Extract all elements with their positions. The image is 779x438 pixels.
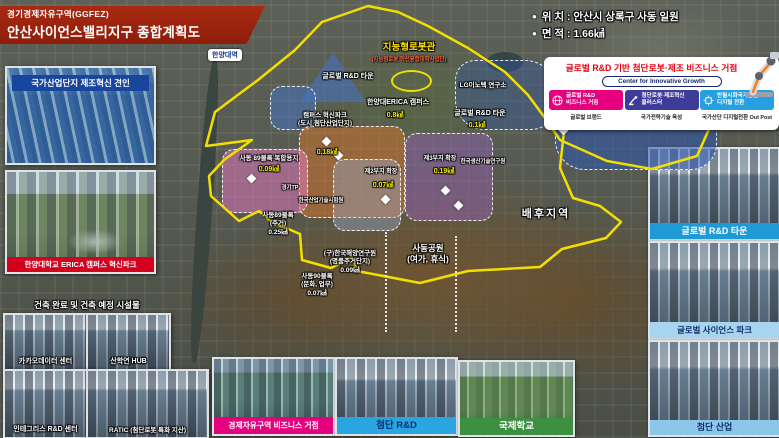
rnd-town-caption: 글로벌 R&D 타운: [650, 223, 779, 239]
advanced-rnd-caption: 첨단 R&D: [337, 417, 456, 434]
label-hinterland: 배후지역: [522, 207, 570, 221]
pillar-robot-cluster: 첨단로봇·제조혁신 클러스터 국가전략기술 육성: [625, 90, 699, 121]
label-ktl: 한국산업기술시험원: [299, 198, 344, 205]
facility-label: 카카오데이터 센터: [5, 356, 86, 366]
agency-subtitle: 경기경제자유구역(GGFEZ): [7, 8, 255, 20]
label-block90: 사동90블록(문화, 업무)0.07㎢: [301, 273, 333, 298]
zone-global-rnd-pond: [455, 60, 557, 130]
label-robot-hall: 지능형로봇관: [383, 42, 435, 54]
pillar-text: 첨단로봇·제조혁신 클러스터: [642, 93, 685, 106]
label-campus-innovation-park: 캠퍼스 혁신파크(도시 첨단산업단지): [298, 112, 352, 129]
label-global-rnd-west: 글로벌 R&D 타운: [322, 72, 373, 81]
label-global-rnd-east-area: 0.1㎢: [469, 121, 486, 130]
robot-hall-circle: [391, 70, 432, 92]
pillar-global-rnd: 글로벌 R&D 비즈니스 거점 글로벌 브랜드: [549, 90, 623, 121]
label-erica-area: 0.8㎢: [387, 111, 404, 120]
label-global-rnd-east: 글로벌 R&D 타운: [454, 109, 505, 118]
pillar-footer: 국가산단 디지털전환 Out Post: [700, 113, 774, 121]
global-science-park-panel: 글로벌 사이언스 파크: [648, 241, 779, 340]
title-banner: 경기경제자유구역(GGFEZ) 안산사이언스밸리지구 종합계획도: [0, 6, 265, 44]
pillar-box: 첨단로봇·제조혁신 클러스터: [625, 90, 699, 110]
facility-label: RATIC (첨단로봇 특화 지산): [88, 424, 207, 434]
pillar-box: 글로벌 R&D 비즈니스 거점: [549, 90, 623, 110]
business-hub-caption: 경제자유구역 비즈니스 거점: [214, 417, 333, 434]
erica-innovation-park-panel: 한양대학교 ERICA 캠퍼스 혁신파크: [5, 170, 156, 274]
science-park-caption: 글로벌 사이언스 파크: [650, 322, 779, 338]
label-ex-kordi: (구)한국해양연구원(명품주거단지)0.09㎢: [324, 250, 376, 275]
zone-site3-expansion: [405, 133, 493, 221]
pillar-text: 글로벌 R&D 비즈니스 거점: [566, 93, 598, 106]
facility-thumb-ratic: RATIC (첨단로봇 특화 지산): [86, 369, 209, 438]
erica-caption: 한양대학교 ERICA 캠퍼스 혁신파크: [7, 257, 154, 272]
area-text: 면 적 : 1.66㎢: [542, 26, 605, 41]
label-block89-mixed: 사동 89블록 복합용지: [240, 155, 299, 163]
industrial-complex-panel: 국가산업단지 제조혁신 견인: [5, 66, 156, 165]
bullet-icon: ●: [532, 12, 537, 21]
globe-icon: [552, 95, 563, 106]
robot-arm-icon: [628, 95, 639, 106]
facility-thumb-hub: 산학연 HUB: [86, 313, 171, 371]
label-site2-area: 0.07㎢: [373, 181, 394, 190]
label-kitech: 한국생산기술연구원: [461, 159, 506, 166]
facility-thumb-entegris: 인테그리스 R&D 센터: [3, 369, 88, 438]
international-school-caption: 국제학교: [460, 418, 573, 435]
fez-business-hub-panel: 경제자유구역 비즈니스 거점: [212, 357, 335, 436]
growth-title: 글로벌 R&D 기반 첨단로봇·제조 비즈니스 거점: [550, 61, 753, 74]
location-text: 위 치 : 안산시 상록구 사동 일원: [542, 9, 679, 24]
facility-label: 산학연 HUB: [88, 356, 169, 366]
facilities-heading: 건축 완료 및 건축 예정 시설물: [12, 299, 162, 311]
area-row: ● 면 적 : 1.66㎢: [532, 26, 679, 41]
label-sadong-park: 사동공원(여가, 휴식): [407, 243, 449, 265]
site-info: ● 위 치 : 안산시 상록구 사동 일원 ● 면 적 : 1.66㎢: [532, 9, 679, 43]
label-site2-expansion: 제2부지 확장: [365, 169, 398, 177]
growth-subtitle-pill: Center for Innovative Growth: [602, 76, 722, 87]
facility-label: 인테그리스 R&D 센터: [5, 424, 86, 434]
label-site3-area: 0.19㎢: [434, 167, 455, 176]
label-robot-hall-sub: (지능형로봇 혁신융합대학사업단): [372, 57, 447, 64]
label-lg-innotek: LG이노텍 연구소: [460, 82, 507, 90]
advanced-industry-caption: 첨단 산업: [650, 420, 779, 435]
label-site3-expansion: 제3부지 확장: [424, 156, 457, 164]
industrial-caption: 국가산업단지 제조혁신 견인: [12, 75, 149, 91]
advanced-rnd-panel: 첨단 R&D: [335, 357, 458, 436]
boundary-dotted-line: [385, 232, 387, 332]
label-block89-housing: 사동89블록(주거)0.25㎢: [262, 212, 293, 237]
page-title: 안산사이언스밸리지구 종합계획도: [7, 21, 255, 41]
label-block89-mixed-area: 0.09㎢: [259, 165, 280, 174]
plan-poster: 한양대역 지능형로봇관(지능형로봇 혁신융합대학사업단)글로벌 R&D 타운한양…: [0, 0, 779, 438]
label-campus-innovation-area: 0.18㎢: [317, 148, 338, 157]
facility-thumb-kakao: 카카오데이터 센터: [3, 313, 88, 371]
boundary-dotted-line: [455, 236, 457, 332]
location-row: ● 위 치 : 안산시 상록구 사동 일원: [532, 9, 679, 24]
advanced-industry-panel: 첨단 산업: [648, 340, 779, 437]
label-gyeonggi-tp: 경기TP: [282, 185, 299, 192]
international-school-panel: 국제학교: [458, 360, 575, 437]
bullet-icon: ●: [532, 29, 537, 38]
pillar-footer: 글로벌 브랜드: [549, 113, 623, 121]
robot-arm-image: [737, 48, 779, 98]
pillar-footer: 국가전략기술 육성: [625, 113, 699, 121]
label-erica-campus: 한양대ERICA 캠퍼스: [367, 98, 429, 107]
station-badge: 한양대역: [208, 49, 242, 61]
digital-icon: [703, 95, 714, 106]
